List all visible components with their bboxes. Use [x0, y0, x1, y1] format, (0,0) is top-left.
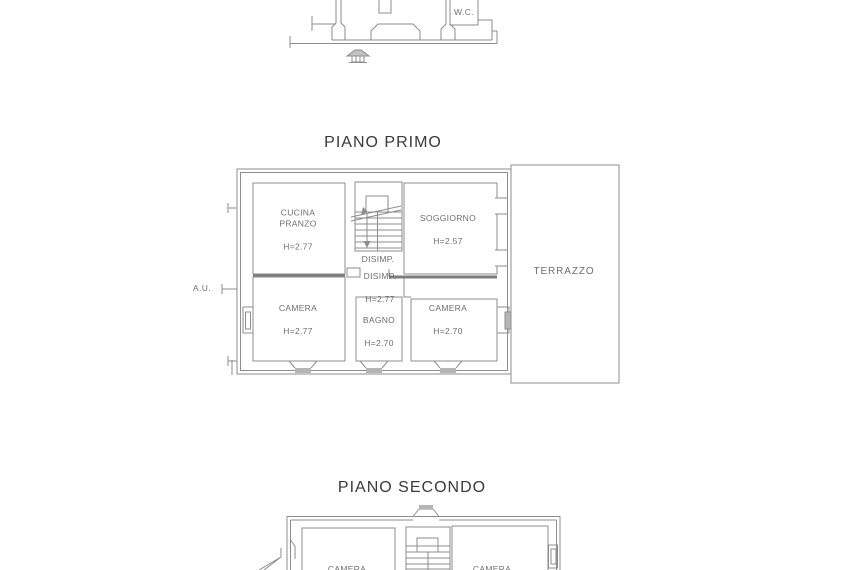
window-icon-bottom-2: [360, 361, 388, 373]
disimpegno-partition: [404, 278, 411, 297]
window-icon-right-wall: [497, 307, 511, 333]
access-label: A.U.: [193, 272, 211, 306]
room-name: CAMERA: [279, 303, 317, 314]
room-name: CAMERA: [429, 303, 467, 314]
window-icon-left-wall: [243, 307, 253, 333]
room-height: H=2.77: [279, 241, 316, 252]
room-height: H=2.77: [279, 326, 317, 337]
window-icon-bottom-3: [434, 361, 462, 373]
room-height: H=2.70: [429, 326, 467, 337]
roof-vent-icon: [347, 50, 369, 63]
door-opening-top: [379, 0, 391, 13]
left-wall-pier: [291, 540, 296, 559]
room-name: CAMERA: [473, 564, 511, 570]
piano-secondo-plan-fragment: [259, 505, 560, 570]
room-label-camera-left: CAMERA H=2.77: [279, 292, 317, 348]
room-name: CUCINA PRANZO: [279, 208, 316, 230]
room-name: CAMERA: [328, 564, 366, 570]
room-height: H=2.70: [363, 338, 395, 349]
room-label-camera-right-p2: CAMERA: [473, 553, 511, 570]
room-name: W.C.: [454, 7, 474, 18]
room-name: SOGGIORNO: [420, 213, 476, 224]
floor-plan-document: W.C. PIANO PRIMO CUCINA PRANZO H=2.77 SO…: [0, 0, 850, 570]
access-pointer-line: [222, 284, 237, 294]
room-label-camera-right: CAMERA H=2.70: [429, 292, 467, 348]
room-label-terrazzo: TERRAZZO: [533, 252, 594, 292]
access-label-text: A.U.: [193, 283, 211, 294]
wall-ticks-left: [228, 203, 237, 366]
stairs-p2-icon: [406, 527, 450, 570]
room-label-bagno: BAGNO H=2.70: [363, 304, 395, 360]
room-height: H=2.57: [420, 236, 476, 247]
room-name: BAGNO: [363, 315, 395, 326]
window-icon-top-wall: [413, 505, 439, 521]
page-title-piano-secondo: PIANO SECONDO: [338, 479, 486, 497]
window-icon-bottom-1: [289, 361, 317, 373]
stairs-icon: [351, 182, 402, 251]
room-label-soggiorno: SOGGIORNO H=2.57: [420, 202, 476, 258]
room-label-camera-left-p2: CAMERA: [328, 553, 366, 570]
balcony-fragment: [259, 548, 281, 570]
room-label-cucina: CUCINA PRANZO H=2.77: [279, 196, 316, 263]
room-name: TERRAZZO: [533, 265, 594, 278]
room-name: DISIMP.: [364, 271, 397, 282]
room-label-wc: W.C.: [454, 0, 474, 30]
page-title-piano-primo: PIANO PRIMO: [324, 134, 442, 152]
